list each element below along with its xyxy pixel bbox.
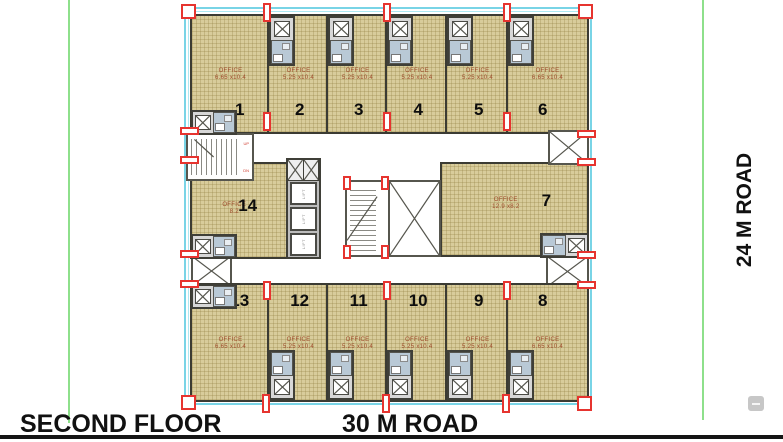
office-11-dims: OFFICE5.25 x10.4 [342,337,373,351]
toilet-unit [213,112,235,133]
registration-mark [262,394,270,413]
shaft-icon [330,376,352,398]
registration-mark [180,250,199,258]
toilet-unit [510,352,532,376]
registration-mark [577,130,596,138]
toilet-unit [213,236,235,257]
lift-3: LIFT [290,233,317,256]
duct-shaft-icon [288,160,304,180]
lift-2-label: LIFT [301,214,306,224]
registration-mark [577,158,596,166]
road-right-label-wrap: 24 M ROAD [700,155,783,265]
toilet-unit [271,352,293,376]
registration-mark [503,281,511,300]
shaft-icon [193,286,213,307]
registration-mark [343,245,351,259]
toilet-unit [389,40,411,64]
road-line-left [68,0,70,423]
registration-mark [577,396,592,411]
service-block-office-3 [328,16,354,66]
service-block-office-2 [269,16,295,66]
bottom-rule [0,435,783,439]
floor-plan-page: OFFICE6.65 x10.4 1 OFFICE5.25 x10.4 2 OF… [0,0,783,442]
registration-mark [181,395,196,410]
toilet-unit [271,40,293,64]
lift-1-label: LIFT [301,189,306,199]
office-7-dims: OFFICE12.9 x8.2 [492,197,519,211]
shaft-icon [389,376,411,398]
service-block-office-6 [508,16,534,66]
toilet-unit [330,40,352,64]
office-8-number: 8 [538,291,547,311]
registration-mark [578,4,593,19]
office-6-number: 6 [538,100,547,120]
office-2-number: 2 [295,100,304,120]
registration-mark [180,280,199,288]
registration-mark [383,3,391,22]
registration-mark [503,112,511,131]
registration-mark [577,251,596,259]
office-9-dims: OFFICE5.25 x10.4 [462,337,493,351]
service-block-office-10 [387,350,413,400]
service-block-office-11 [328,350,354,400]
lift-1: LIFT [290,182,317,205]
registration-mark [181,4,196,19]
office-13-dims: OFFICE6.65 x10.4 [215,337,246,351]
toilet-unit [449,352,471,376]
stair-down-label: DN [243,168,249,173]
service-block-office-5 [447,16,473,66]
registration-mark [180,156,199,164]
lift-3-label: LIFT [301,239,306,249]
shaft-icon [330,18,352,40]
office-3-dims: OFFICE5.25 x10.4 [342,68,373,82]
registration-mark [383,112,391,131]
office-5-number: 5 [474,100,483,120]
registration-mark [383,281,391,300]
central-void-shaft [388,180,441,257]
service-block-office-12 [269,350,295,400]
shaft-icon [389,18,411,40]
registration-mark [180,127,199,135]
office-4-dims: OFFICE5.25 x10.4 [401,68,432,82]
toilet-unit [213,286,235,307]
office-10-number: 10 [409,291,428,311]
office-3-number: 3 [354,100,363,120]
lift-duct [288,160,319,181]
service-block-office-4 [387,16,413,66]
lift-2: LIFT [290,207,317,230]
office-2-dims: OFFICE5.25 x10.4 [283,68,314,82]
office-12-number: 12 [290,291,309,311]
minus-icon [752,403,760,405]
toilet-unit [449,40,471,64]
registration-mark [381,176,389,190]
office-1-dims: OFFICE6.65 x10.4 [215,68,246,82]
office-10-dims: OFFICE5.25 x10.4 [401,337,432,351]
office-6-dims: OFFICE6.65 x10.4 [532,68,563,82]
registration-mark [381,245,389,259]
registration-mark [263,3,271,22]
service-block-office-8 [508,350,534,400]
road-right-label: 24 M ROAD [733,153,757,267]
lift-bank: LIFT LIFT LIFT [286,158,321,259]
stair-up-label: UP [243,141,249,146]
toilet-unit [330,352,352,376]
registration-mark [263,281,271,300]
zoom-out-button[interactable] [748,396,764,411]
registration-mark [577,281,596,289]
office-9-number: 9 [474,291,483,311]
office-11-number: 11 [350,291,368,311]
duct-shaft-icon [304,160,320,180]
toilet-unit [542,235,566,256]
office-4-number: 4 [413,100,422,120]
office-14-number: 14 [238,196,257,216]
office-7-number: 7 [542,191,551,211]
office-12-dims: OFFICE5.25 x10.4 [283,337,314,351]
toilet-unit [510,40,532,64]
shaft-icon [510,376,532,398]
shaft-icon [449,376,471,398]
service-block-office-9 [447,350,473,400]
office-8-dims: OFFICE6.65 x10.4 [532,337,563,351]
registration-mark [503,3,511,22]
registration-mark [343,176,351,190]
shaft-icon [510,18,532,40]
registration-mark [263,112,271,131]
shaft-icon [449,18,471,40]
toilet-unit [389,352,411,376]
office-5-dims: OFFICE5.25 x10.4 [462,68,493,82]
shaft-icon [271,18,293,40]
shaft-icon [271,376,293,398]
registration-mark [502,394,510,413]
